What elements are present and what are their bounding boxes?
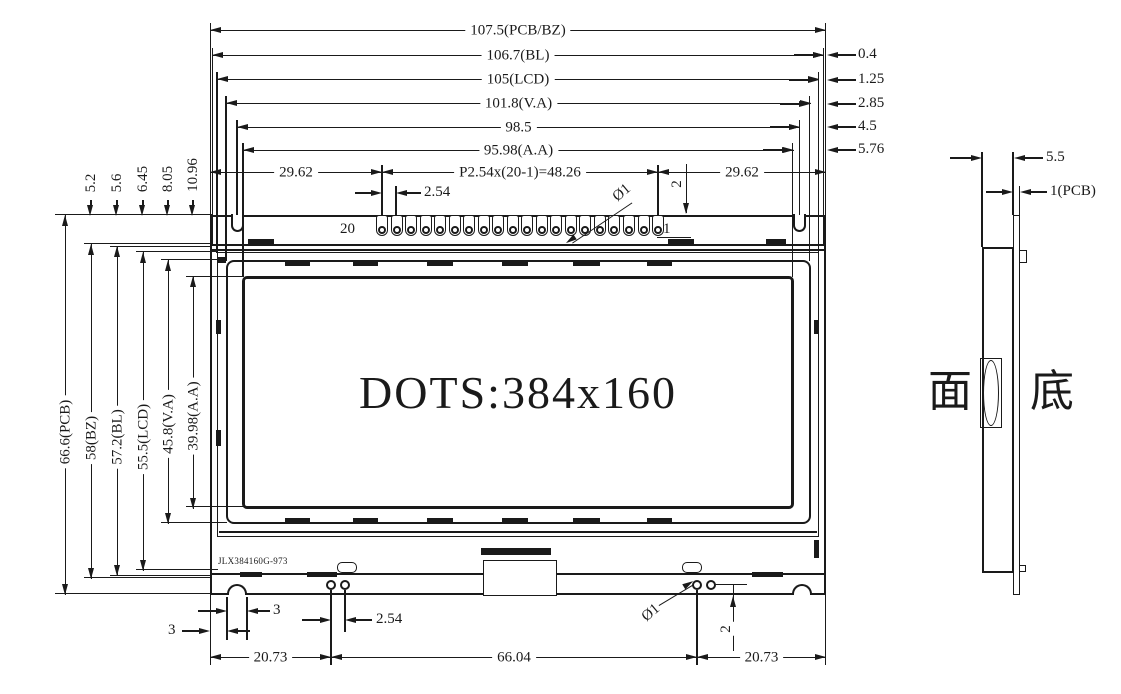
- front-face-label: 面: [928, 370, 972, 414]
- side-component-tick: [1019, 565, 1026, 572]
- back-face-label: 底: [1030, 370, 1074, 414]
- dim-stub: [1031, 191, 1047, 192]
- connector-outline: [483, 560, 557, 596]
- side-lens-ellipse: [983, 360, 999, 426]
- dim-stub: [950, 157, 971, 158]
- backlight-pin-hole: [340, 580, 350, 590]
- dim-pcb-thickness: 1(PCB): [1050, 183, 1096, 200]
- dim-stub: [986, 191, 1002, 192]
- dim-stub: [1025, 157, 1043, 158]
- backlight-tab-left: [337, 562, 357, 573]
- dim-total-thickness: 5.5: [1046, 149, 1065, 166]
- arrowhead: [1020, 189, 1031, 195]
- backlight-tab-right: [682, 562, 702, 573]
- backlight-pin-hole: [706, 580, 716, 590]
- arrowhead: [971, 155, 982, 161]
- extension-line: [981, 152, 982, 247]
- arrowhead: [1002, 189, 1013, 195]
- backlight-pin-hole: [692, 580, 702, 590]
- side-pcb-strip: [1013, 215, 1020, 595]
- side-view: 5.5 1(PCB) 面 底: [0, 0, 1121, 694]
- side-component-bump: [1019, 250, 1027, 263]
- extension-line: [1012, 152, 1013, 215]
- lcd-module-technical-drawing: DOTS:384x160 JLX384160G-973: [0, 0, 1121, 694]
- backlight-pin-hole: [326, 580, 336, 590]
- arrowhead: [1014, 155, 1025, 161]
